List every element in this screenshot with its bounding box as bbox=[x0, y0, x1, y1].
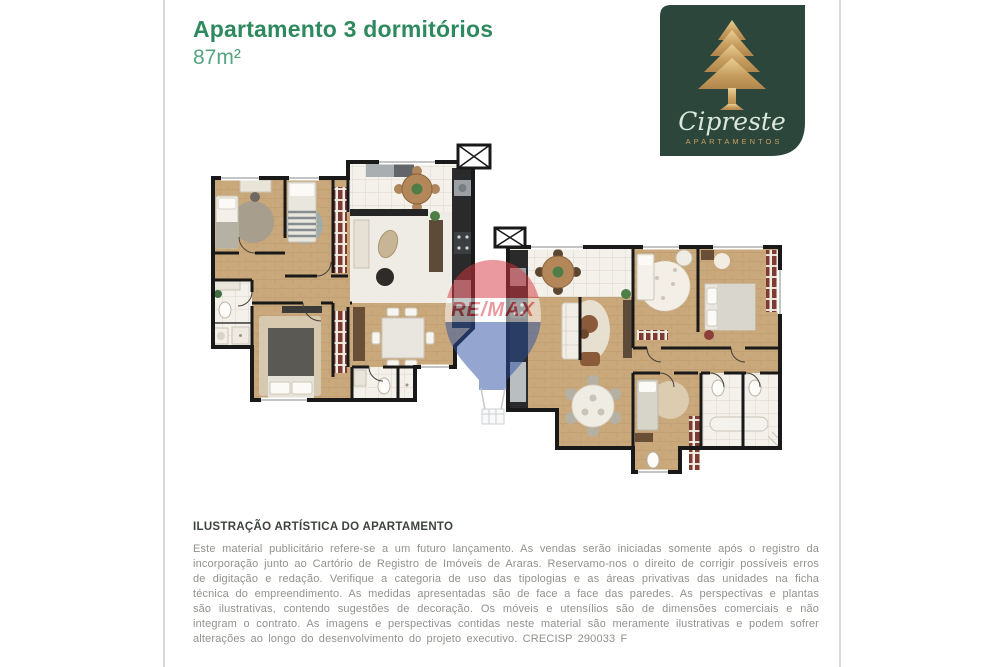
watermark-text: RE/MAX bbox=[451, 299, 535, 321]
logo-badge: Cipreste APARTAMENTOS bbox=[659, 4, 806, 157]
plant bbox=[553, 267, 564, 278]
sink bbox=[354, 370, 366, 386]
tv-rack bbox=[282, 306, 322, 313]
wardrobe bbox=[689, 416, 700, 470]
sideboard bbox=[353, 307, 365, 361]
brand-logo: Cipreste APARTAMENTOS bbox=[659, 4, 806, 157]
dining-table bbox=[382, 318, 424, 358]
balloon-basket bbox=[482, 409, 504, 424]
toilet bbox=[219, 302, 231, 318]
red-rug bbox=[704, 330, 714, 340]
left-frame-line bbox=[163, 0, 165, 667]
right-frame-line bbox=[839, 0, 841, 667]
disclaimer-heading: ILUSTRAÇÃO ARTÍSTICA DO APARTAMENTO bbox=[193, 521, 453, 533]
ottoman bbox=[580, 352, 600, 366]
tv-rack bbox=[623, 300, 632, 358]
armchair bbox=[676, 250, 692, 266]
floor-plan-1 bbox=[213, 145, 490, 403]
shelf bbox=[701, 250, 714, 260]
shaft-icon bbox=[458, 145, 490, 168]
round-rug bbox=[714, 253, 730, 269]
round-dining-table bbox=[572, 385, 614, 427]
disclaimer-body: Este material publicitário refere-se a u… bbox=[193, 542, 819, 647]
shelf bbox=[637, 330, 668, 340]
toilet bbox=[712, 380, 724, 396]
desk bbox=[635, 433, 653, 442]
vanity bbox=[710, 417, 768, 431]
plant bbox=[430, 211, 440, 221]
plant bbox=[214, 290, 222, 298]
wardrobe bbox=[334, 187, 347, 273]
plant bbox=[412, 184, 423, 195]
apartment-area: 87m² bbox=[193, 46, 241, 70]
vanity bbox=[214, 281, 240, 290]
desk bbox=[354, 220, 369, 268]
floor-plans-illustration: RE/MAX bbox=[183, 140, 805, 482]
chair bbox=[250, 192, 260, 202]
flyer-page: Apartamento 3 dormitórios 87m² Cipreste … bbox=[0, 0, 1000, 667]
wardrobe bbox=[334, 311, 347, 373]
plant bbox=[621, 289, 631, 299]
toilet bbox=[647, 452, 659, 468]
floor-plan-2 bbox=[495, 228, 783, 475]
shelf bbox=[429, 220, 443, 272]
bench-counter bbox=[350, 209, 428, 216]
pouf bbox=[376, 268, 394, 286]
desk bbox=[240, 180, 271, 192]
page-title: Apartamento 3 dormitórios bbox=[193, 16, 493, 43]
logo-brand-name: Cipreste bbox=[678, 107, 786, 136]
shaft-icon bbox=[495, 228, 525, 247]
